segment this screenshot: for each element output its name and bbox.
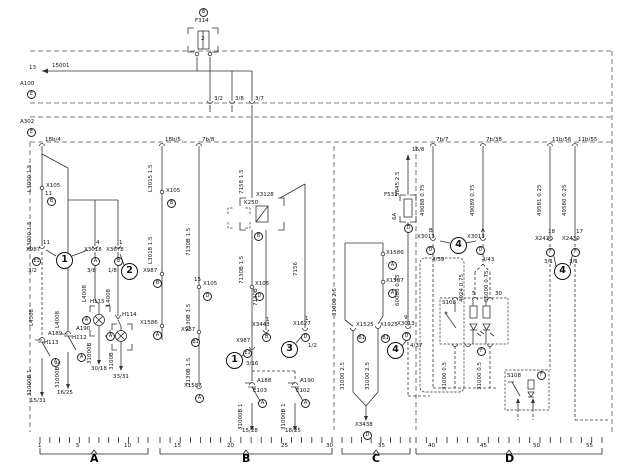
dest-h114: 33/31 [113,374,129,380]
conn-x3018: X3018 [84,247,102,253]
wire-7158: 7158 1.5 [239,170,245,195]
section-b: B [242,456,250,462]
wire-31000-c2: 31000 2.5 [340,362,346,390]
wire-56000: 56000 0.75 [484,271,490,303]
fuse-f533-label: F533 [384,192,398,198]
wire-31000-d2: 31000 0.5 [477,362,483,390]
conn-18b-5: 18b/5 [165,137,181,143]
s108b-code: F [537,371,546,380]
ruler-10: 10 [124,443,131,449]
conn-x987-a-pin: 11 [43,240,50,246]
dest-e103: 15/28 [242,428,258,434]
conn-x2430-2-dest: 3/1 [569,259,578,265]
ruler-5: 5 [76,443,80,449]
wire-4924: 4924 0.75 [459,274,465,302]
wire-15001: 15001 [52,63,70,69]
wire-l4308: L4308 [29,309,35,326]
section-d: D [505,456,514,462]
wire-l3000-2: L3000 1.5 [27,221,33,249]
terminal-13: 13 [29,65,36,71]
conn-x105-a: X105 [46,183,60,189]
conn-x2430-2-pin: 17 [576,229,583,235]
s108-resistor-1 [470,306,477,318]
conn-x3018-code: A [91,257,100,266]
conn-x3438: X3438 [355,422,373,428]
ref-1: 1 [56,252,73,269]
wire-49088: 49088 0.75 [420,185,426,217]
wire-7130b-3: 7130B 1.5 [186,358,192,386]
wire-31000-d1: 31000 0.5 [442,362,448,390]
conn-x987-b3-code: E1 [243,349,252,358]
component-boxes [228,208,549,410]
conn-x1586-b-code: A [153,331,162,340]
conn-x1627-code: D [301,333,310,342]
wire-l4008-3: L4008 [106,289,112,306]
f533-element [404,199,412,217]
k250-subbracket [228,208,250,228]
comp-h112-code: A [77,353,86,362]
conn-x1587-b-code: A [195,394,204,403]
s108b-resistor [528,380,534,389]
comp-h115: H115 [90,299,105,305]
conn-x1587-b: X1587 [184,383,202,389]
conn-x987-b1-code: B [153,279,162,288]
conn-x1627-dest: 1/2 [308,343,317,349]
ruler-45: 45 [480,443,487,449]
conn-3-2: 3/2 [214,96,223,102]
conn-x987-a-dest: 3/2 [28,268,37,274]
conn-3-7: 3/7 [255,96,264,102]
conn-x3443-code: B [262,333,271,342]
s108b-led [528,392,534,397]
relay-k250-code: B [254,232,263,241]
conn-x3128: X3128 [256,192,274,198]
conn-16-8: 16/8 [412,147,424,153]
dest-h115: 30/18 [91,366,107,372]
fuse-f314-label: F314 [195,18,209,24]
dest-h112: 16/25 [57,390,73,396]
conn-11b-56: 11b/56 [552,137,571,143]
conn-x1525: X1525 [356,322,374,328]
conn-x3013-c-code: D [402,332,411,341]
comp-e102-code: A [301,399,310,408]
conn-x105-b2-pin: 15 [194,277,201,283]
wire-l3000-1: L3000 1.5 [27,164,33,192]
comp-a189: A189 [48,331,62,337]
conn-x3013-d1-pin: B [429,228,433,234]
conn-18b-4: 18b/4 [45,137,61,143]
wire-31000b1-2: 31000B 1 [281,403,287,430]
ref-4a: 4 [387,342,404,359]
conn-x2430-1-code: F [546,248,555,257]
conn-x3013-d1-dest: 4/39 [432,257,444,263]
wire-31000-c3: 31000 2.5 [365,362,371,390]
s108-led-1 [470,324,477,330]
wire-31000b-3: 31000B [87,343,93,364]
wiring-diagram-page: BF31421315001A100EA302E3/23/83/718b/4L30… [0,0,624,475]
conn-x1586-c-code: A [388,261,397,270]
s108-led-2 [483,324,490,330]
conn-x3443-pin: 1 [266,317,270,323]
conn-x987-b3: X987 [236,338,250,344]
solid-wires [35,57,575,426]
wire-49580: 49580 0.25 [562,185,568,217]
conn-x3438-code: D [363,431,372,440]
conn-x105-b2: X105 [203,281,217,287]
conn-x2430-1: X2430 [535,236,553,242]
ruler-40: 40 [428,443,435,449]
conn-x3013-d2-dest: 4/43 [482,257,494,263]
dest-h113: 15/31 [30,398,46,404]
conn-x1525-code: B1 [357,334,366,343]
wire-l3018: L3018 1.5 [148,236,154,264]
sheet-ref-circle: B [199,8,208,17]
wire-l4008-1: L4008 [55,311,61,328]
conn-x3013-d2-code: D [476,246,485,255]
comp-e103-code: A [258,399,267,408]
wire-49089: 49089 0.75 [470,185,476,217]
ruler-15: 15 [174,443,181,449]
ruler-1: 1 [38,443,42,449]
comp-h114: H114 [122,312,137,318]
conn-x105-b1-code: B [167,199,176,208]
module-a100: A100 [20,81,34,87]
wire-7130b-4: 7130B 1.5 [239,256,245,284]
conn-x987-b3-dest: 3/16 [246,361,258,367]
conn-x987-a: X987 [26,247,40,253]
ruler-35: 35 [378,443,385,449]
conn-x3018-dest: 3/8 [87,268,96,274]
conn-x2430-1-dest: 3/1 [544,259,553,265]
wire-49581: 49581 0.25 [537,185,543,217]
conn-x987-a-code: E1 [32,257,41,266]
dest-e102: 18/25 [285,428,301,434]
conn-x3013-d2-pin: A [481,228,485,234]
comp-h114-code: A [106,332,115,341]
wire-31000b1-1: 31000B 1 [238,403,244,430]
ref-2: 2 [121,263,138,280]
conn-3-8: 3/8 [235,96,244,102]
conn-x1627-pin: 1 [305,316,309,322]
conn-x3013-c-pin: 9 [404,315,408,321]
conn-x105-b1: X105 [166,188,180,194]
s108-pin-30: 30 [495,291,502,297]
ref-4c: 4 [554,263,571,280]
conn-x3678-pin: 1 [119,240,123,246]
conn-x1925: X1925 [380,322,398,328]
wire-l3015: L3015 1.5 [148,164,154,192]
comp-e103: E103 [253,388,267,394]
s108-code: F [477,347,486,356]
schematic-lines [0,0,624,475]
wire-31000b-1: 31000B 1 [27,369,33,396]
conn-x987-b2: X987 [181,327,195,333]
conn-x1586-b: X1586 [140,320,158,326]
fuse-f314-rating: 2 [201,36,205,42]
conn-x105-b3: X105 [255,281,269,287]
conn-11b-55: 11b/55 [578,137,597,143]
module-a302: A302 [20,119,34,125]
conn-x2430-2: X2430 [562,236,580,242]
conn-x105-b2-code: D [203,292,212,301]
fuse-f533-rating: 6A [392,213,398,220]
ref-1b: 1 [226,352,243,369]
conn-x3678-dest: 1/8 [108,268,117,274]
comp-h113: H113 [44,340,59,346]
wire-7156: 7156 [293,262,299,276]
conn-x987-b1: X987 [143,268,157,274]
conn-x3013-c: X3013 [397,321,415,327]
fuse-f533-code: D [404,224,413,233]
conn-x1586-c: X1586 [386,250,404,256]
wire-3100b: 3100B [109,352,115,370]
conn-x3013-d2: X3013 [467,234,485,240]
ref-4b: 4 [450,237,467,254]
conn-x3678-code: B [114,257,123,266]
switch-s108: S108 [442,300,456,306]
wire-7130b-5: 7130B [253,288,259,306]
ruler-20: 20 [227,443,234,449]
section-a: A [90,456,99,462]
wire-7130b-1: 7130B 1.5 [186,228,192,256]
wire-60088: 60088 0.75 [395,275,401,307]
conn-x1925-code: B1 [381,334,390,343]
ruler-30: 30 [326,443,333,449]
module-a100-code: E [27,90,36,99]
module-a302-code: E [27,128,36,137]
conn-x3013-d1: X3013 [417,234,435,240]
conn-x987-b2-code: B1 [191,338,200,347]
wire-31000b-2: 31000B 1 [55,361,61,388]
switch-s108b: S108 [507,373,521,379]
section-c: C [372,456,380,462]
conn-x3013-c-dest: 4/37 [410,343,422,349]
comp-a188: A188 [257,378,271,384]
comp-h115-code: A [82,316,91,325]
ruler-50: 50 [533,443,540,449]
comp-a190-a: A190 [76,326,90,332]
conn-7b-8: 7b/8 [202,137,214,143]
conn-x2430-2-code: F [571,248,580,257]
wire-31000-c1: 31000 2.5 [332,288,338,316]
ruler-25: 25 [281,443,288,449]
s108-resistor-2 [483,306,490,318]
comp-a190-b: A190 [300,378,314,384]
conn-x2430-1-pin: 18 [548,229,555,235]
conn-x3678: X3678 [106,247,124,253]
wire-l4008-2: L4008 [82,285,88,302]
conn-x3018-pin: 4 [96,240,100,246]
conn-7b-7: 7b/7 [436,137,448,143]
conn-x105-a-code: B [47,197,56,206]
conn-x3013-d1-code: D [426,246,435,255]
ref-3: 3 [281,341,298,358]
comp-h112: H112 [72,335,87,341]
relay-k250: K250 [244,200,258,206]
conn-7b-38: 7b/38 [486,137,502,143]
comp-e102: E102 [296,388,310,394]
s108-pin-5: 5 [472,291,476,297]
ruler-55: 55 [586,443,593,449]
